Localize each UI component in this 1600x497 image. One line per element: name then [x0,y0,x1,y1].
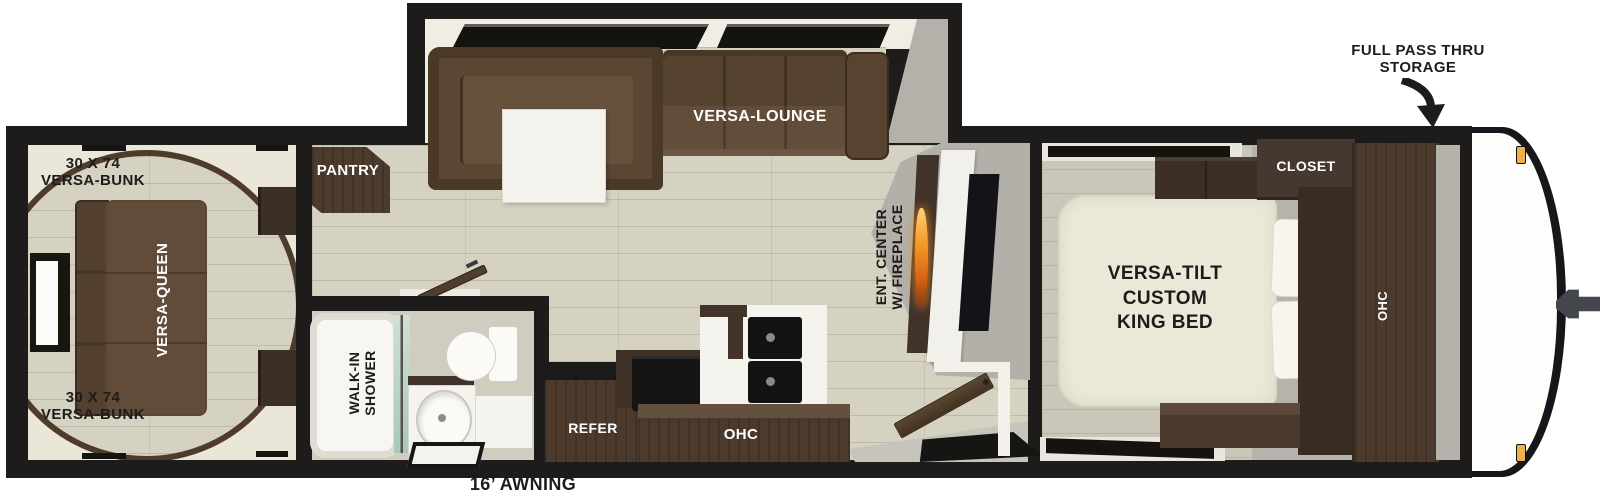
king-bed-line2: CUSTOM [1075,287,1255,312]
entry-door-handle [983,379,989,385]
marker-light-bottom [1516,444,1526,462]
king-bed-line1: VERSA-TILT [1075,262,1255,287]
pantry-label: PANTRY [312,162,384,179]
bunk-window [36,261,58,345]
versa-queen-label: VERSA-QUEEN [154,225,172,375]
king-bed-label: VERSA-TILT CUSTOM KING BED [1075,262,1255,336]
sink-drain [438,414,446,422]
versa-lounge-label: VERSA-LOUNGE [690,108,830,126]
bedroom-wall [1028,126,1042,478]
sink-drain-1 [766,333,775,342]
pass-thru-line2: STORAGE [1318,59,1518,76]
walk-in-line1: WALK-IN [346,352,362,415]
bedroom-bench [1160,403,1300,448]
bunk-top-label: 30 X 74 VERSA-BUNK [28,155,168,190]
marker-light-top [1516,146,1526,164]
pass-thru-line1: FULL PASS THRU [1318,42,1518,59]
lounge-back-cushions [663,50,847,106]
refer-label: REFER [553,420,633,436]
bedroom-wardrobe [1352,143,1439,462]
sink-drain-2 [766,377,775,386]
bunk-wall-mark-top-right [256,145,288,151]
bunk-top-size: 30 X 74 [28,155,168,172]
toilet-bowl [446,331,496,381]
pass-thru-storage-label: FULL PASS THRU STORAGE [1318,42,1518,77]
bathroom-counter [470,396,532,448]
bathroom-wall-top [296,296,548,311]
closet-label: CLOSET [1262,158,1350,174]
ent-center-line1: ENT. CENTER [873,209,889,305]
bunk-bottom-label: 30 X 74 VERSA-BUNK [28,389,168,424]
pass-thru-arrow-icon [1396,78,1448,132]
versa-queen-backrest [75,200,109,416]
walk-in-shower-label: WALK-IN SHOWER [344,328,380,438]
pass-thru-storage-area [1436,145,1460,460]
bunk-wall-mark-top-left [82,145,126,151]
floorplan-canvas: PANORAMIC WINDOW FULL PASS THRU STORAGE … [0,0,1600,497]
bunk-bottom-name: VERSA-BUNK [28,406,168,423]
counter-divider-trim [728,305,743,359]
bunk-cabinet-top [258,187,296,235]
entry-door-jamb-side [998,362,1010,456]
entry-door-jamb-top [934,362,1004,372]
bunk-wall-mark-bottom-left [82,453,126,459]
lounge-armrest [845,52,889,160]
bedroom-ohc-label: OHC [1375,276,1391,336]
bath-mat [407,442,485,468]
panoramic-window-right [717,24,890,48]
stove [632,356,704,411]
bunk-bottom-size: 30 X 74 [28,389,168,406]
panoramic-window-left [452,24,709,49]
bed-headboard-cabinet [1298,187,1354,455]
kitchen-sink-bowl-2 [748,361,802,403]
ent-center-label: ENT. CENTER W/ FIREPLACE [871,177,907,337]
king-bed-line3: KING BED [1075,311,1255,336]
ent-center-line2: W/ FIREPLACE [889,204,905,309]
bunk-wall-mark-bottom-right [256,451,288,457]
counter-left-edge [616,350,632,408]
fireplace-flame [915,208,928,306]
kitchen-ohc-label: OHC [691,426,791,443]
walk-in-line2: SHOWER [362,350,378,415]
lounge-table [502,109,606,203]
bedroom-overhead-cabinet [1155,157,1257,199]
bunk-top-name: VERSA-BUNK [28,172,168,189]
pantry-cabinet [312,147,390,213]
bunk-cabinet-bottom [258,350,296,406]
bedroom-window-top [1048,146,1230,157]
kitchen-sink-bowl-1 [748,317,802,359]
